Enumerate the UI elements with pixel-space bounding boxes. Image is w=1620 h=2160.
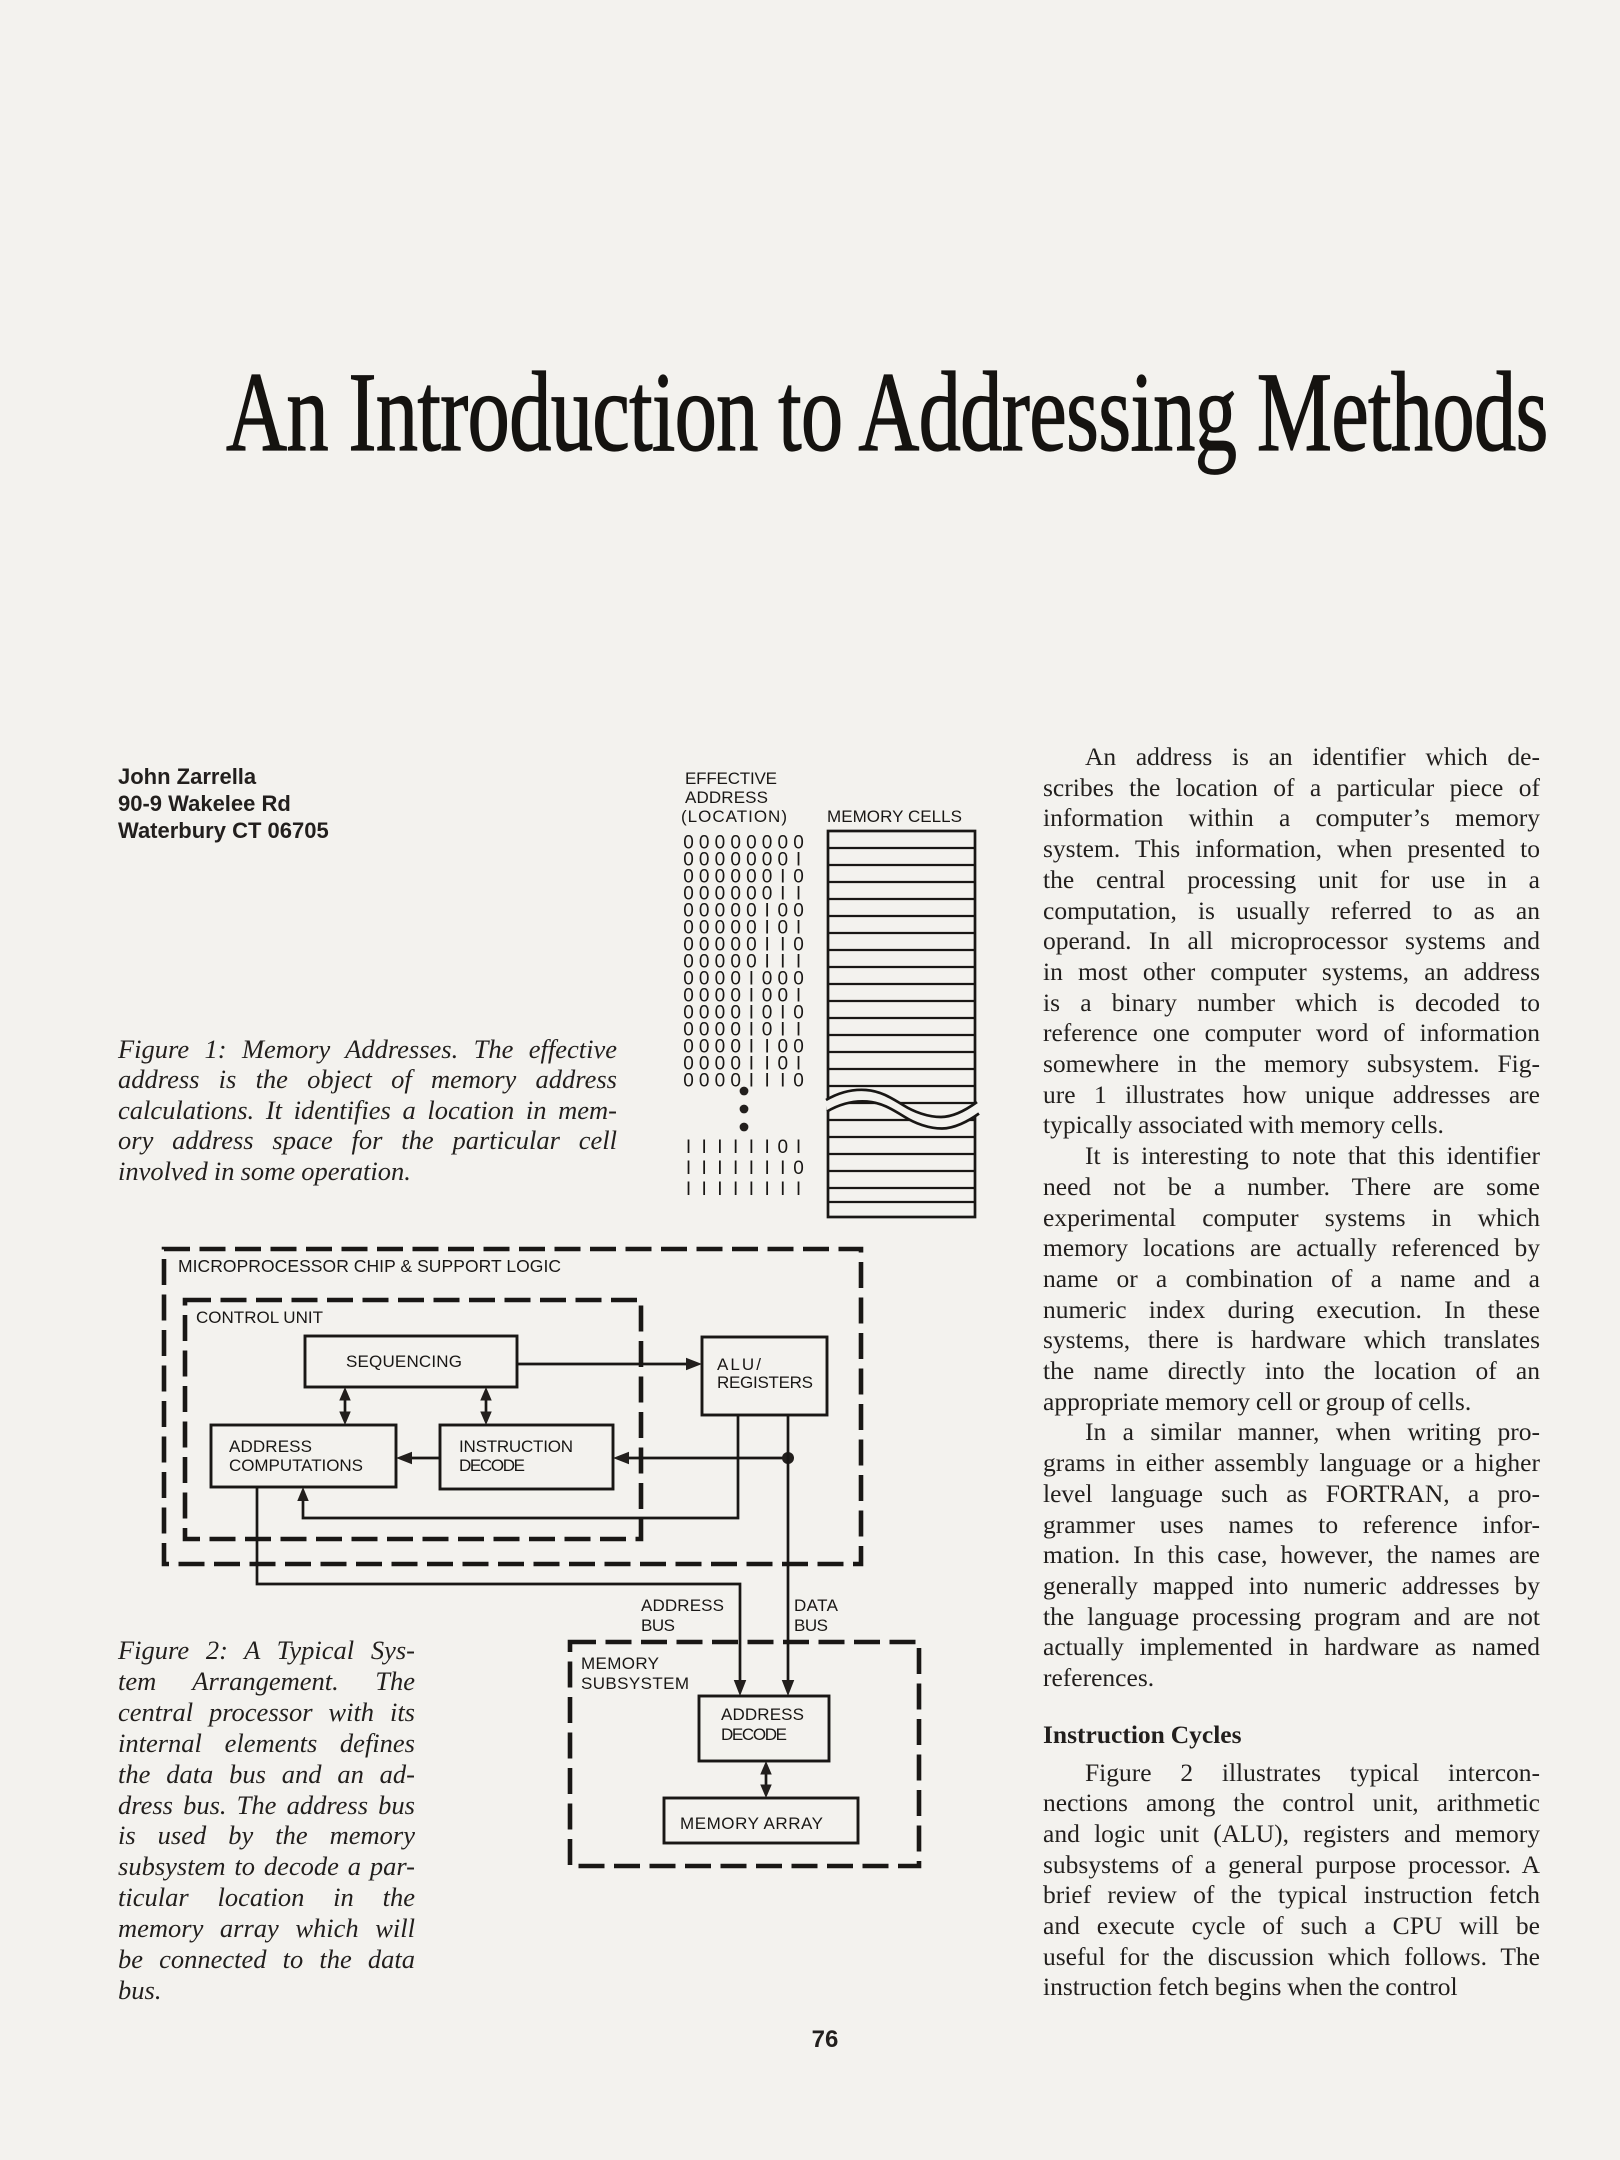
svg-text:ADDRESS: ADDRESS — [229, 1437, 312, 1456]
svg-text:0: 0 — [683, 1071, 694, 1092]
svg-text:INSTRUCTION: INSTRUCTION — [459, 1437, 573, 1456]
svg-text:MICROPROCESSOR CHIP & SUPPORT: MICROPROCESSOR CHIP & SUPPORT LOGIC — [178, 1256, 561, 1276]
svg-text:I: I — [717, 1158, 722, 1179]
svg-text:I: I — [717, 1137, 722, 1158]
svg-text:DECODE: DECODE — [459, 1456, 525, 1475]
svg-text:I: I — [749, 1137, 754, 1158]
svg-text:0: 0 — [699, 1071, 710, 1092]
svg-text:ADDRESS: ADDRESS — [721, 1705, 804, 1724]
svg-text:SUBSYSTEM: SUBSYSTEM — [581, 1674, 689, 1693]
svg-text:I: I — [780, 1179, 785, 1200]
svg-text:MEMORY: MEMORY — [581, 1654, 659, 1673]
svg-text:BUS: BUS — [794, 1616, 828, 1635]
svg-text:REGISTERS: REGISTERS — [717, 1373, 813, 1392]
svg-text:0: 0 — [715, 1071, 726, 1092]
svg-text:SEQUENCING: SEQUENCING — [346, 1352, 462, 1371]
svg-text:0: 0 — [730, 1071, 741, 1092]
svg-text:I: I — [780, 1158, 785, 1179]
svg-text:ADDRESS: ADDRESS — [685, 788, 768, 807]
svg-text:I: I — [780, 1071, 785, 1092]
svg-text:BUS: BUS — [641, 1616, 675, 1635]
svg-text:I: I — [749, 1158, 754, 1179]
svg-text:I: I — [749, 1071, 754, 1092]
svg-text:I: I — [702, 1158, 707, 1179]
svg-text:ADDRESS: ADDRESS — [641, 1596, 724, 1615]
svg-text:(LOCATION): (LOCATION) — [681, 807, 787, 826]
svg-text:I: I — [686, 1179, 691, 1200]
svg-text:0: 0 — [778, 1137, 789, 1158]
svg-text:I: I — [686, 1158, 691, 1179]
svg-text:MEMORY CELLS: MEMORY CELLS — [827, 807, 962, 826]
svg-text:I: I — [764, 1179, 769, 1200]
svg-text:COMPUTATIONS: COMPUTATIONS — [229, 1456, 363, 1475]
svg-text:I: I — [749, 1179, 754, 1200]
svg-text:I: I — [796, 1137, 801, 1158]
svg-text:I: I — [702, 1179, 707, 1200]
svg-text:0: 0 — [793, 1158, 804, 1179]
svg-text:0: 0 — [793, 1071, 804, 1092]
svg-text:DATA: DATA — [794, 1596, 839, 1615]
svg-text:EFFECTIVE: EFFECTIVE — [685, 769, 777, 788]
svg-text:MEMORY ARRAY: MEMORY ARRAY — [680, 1814, 823, 1833]
svg-text:I: I — [733, 1179, 738, 1200]
svg-text:I: I — [764, 1137, 769, 1158]
svg-text:I: I — [702, 1137, 707, 1158]
svg-text:I: I — [686, 1137, 691, 1158]
svg-text:ALU/: ALU/ — [717, 1355, 761, 1374]
svg-text:CONTROL UNIT: CONTROL UNIT — [196, 1308, 323, 1327]
svg-text:I: I — [733, 1137, 738, 1158]
svg-text:I: I — [717, 1179, 722, 1200]
svg-text:DECODE: DECODE — [721, 1725, 787, 1744]
svg-text:I: I — [733, 1158, 738, 1179]
svg-text:I: I — [796, 1179, 801, 1200]
svg-text:I: I — [764, 1071, 769, 1092]
svg-text:I: I — [764, 1158, 769, 1179]
